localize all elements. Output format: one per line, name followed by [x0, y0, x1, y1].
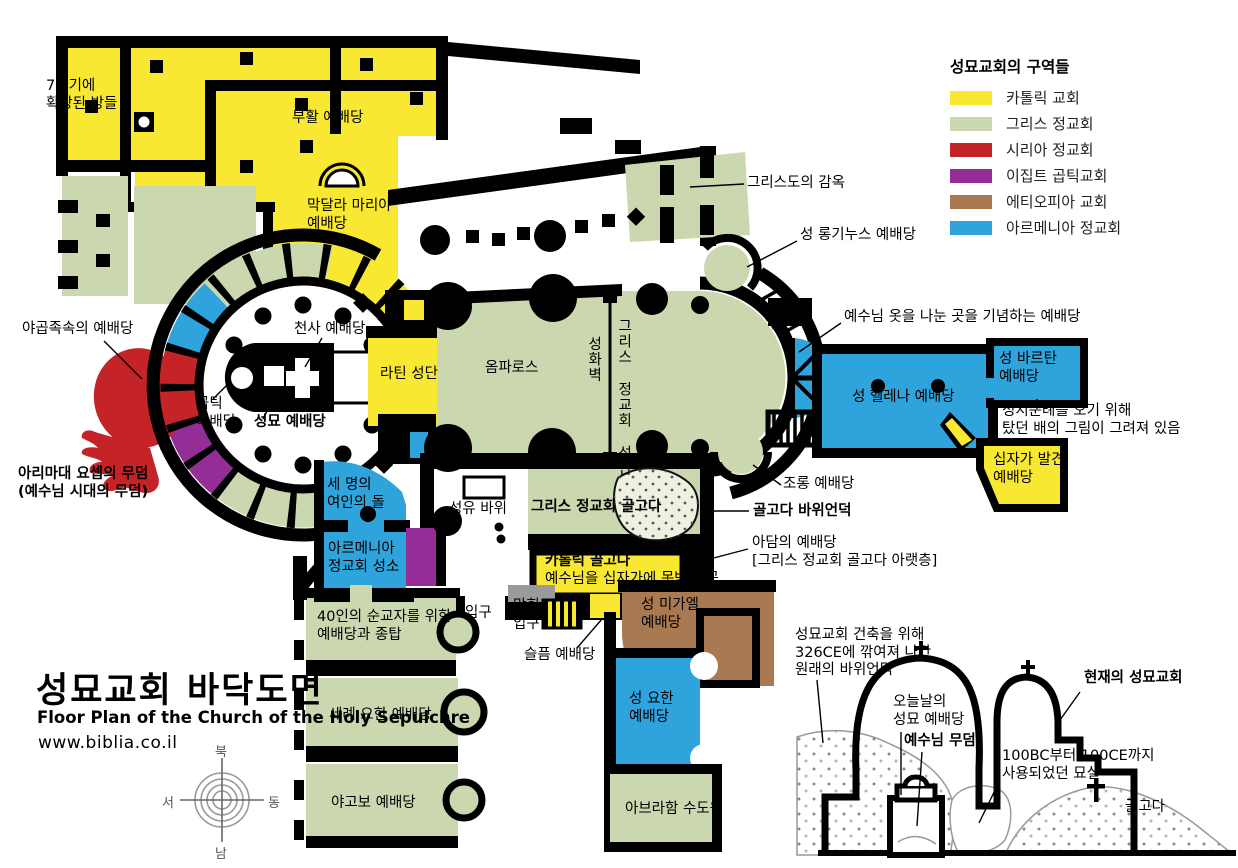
label-prison: 그리스도의 감옥	[747, 175, 845, 193]
label-robes: 예수님 옷을 나눈 곳을 기념하는 예배당	[844, 309, 1080, 327]
label-sorrow: 슬픔 예배당	[524, 647, 595, 665]
label-catholic-golgotha: 카톨릭 골고다	[545, 553, 630, 571]
legend-title: 성묘교회의 구역들	[950, 55, 1121, 77]
label-cut-rock: 성묘교회 건축을 위해 326CE에 깎여져 나간 원래의 바위언덕	[795, 627, 931, 680]
label-resurrection: 부활 예배당	[292, 110, 363, 128]
label-vartan: 성 바르탄 예배당	[999, 351, 1057, 386]
label-three-women: 세 명의 여인의 돌	[327, 477, 385, 512]
label-omphalos: 옴파로스	[485, 360, 538, 378]
legend-swatch-syrian	[950, 143, 992, 157]
label-greek-golgotha: 그리스 정교회 골고다	[531, 499, 661, 517]
page-title: 성묘교회 바닥도면	[36, 662, 324, 713]
compass-east: 동	[268, 792, 280, 811]
section-tomb-box	[890, 798, 942, 855]
legend-row-greek: 그리스 정교회	[950, 113, 1121, 134]
compass	[180, 758, 264, 842]
legend-row-catholic: 카톨릭 교회	[950, 87, 1121, 108]
legend-row-ethiopian: 에티오피아 교회	[950, 191, 1121, 212]
website-url[interactable]: www.biblia.co.il	[38, 733, 177, 753]
label-jesus-tomb: 예수님 무덤	[904, 733, 976, 751]
label-sepulchre: 성묘 예배당	[254, 414, 326, 432]
region-prison	[625, 152, 750, 242]
legend-swatch-armenian	[950, 221, 992, 235]
legend-row-coptic: 이집트 곱틱교회	[950, 165, 1121, 186]
label-forty-martyrs: 40인의 순교자를 위한 예배당과 종탑	[317, 609, 451, 644]
label-greek-altar: 그리스 정교회 성단	[614, 318, 632, 476]
label-angel: 천사 예배당	[294, 321, 365, 339]
legend-label: 카톨릭 교회	[1006, 87, 1080, 108]
legend-swatch-greek	[950, 117, 992, 131]
legend-label: 에티오피아 교회	[1006, 191, 1107, 212]
legend-swatch-coptic	[950, 169, 992, 183]
label-st-john: 성 요한 예배당	[629, 691, 674, 726]
legend: 성묘교회의 구역들 카톨릭 교회 그리스 정교회 시리아 정교회 이집트 곱틱교…	[950, 55, 1121, 243]
label-section-golgotha: 골고다	[1125, 799, 1165, 817]
legend-row-syrian: 시리아 정교회	[950, 139, 1121, 160]
region-longinus	[704, 245, 750, 291]
label-entrance: 입구	[465, 605, 492, 623]
label-mocking: 조롱 예배당	[783, 476, 854, 494]
legend-label: 이집트 곱틱교회	[1006, 165, 1107, 186]
label-armenian: 아르메니아 정교회 성소	[328, 541, 399, 576]
label-magdalene: 막달라 마리아 예배당	[307, 198, 392, 233]
label-golgotha-rock: 골고다 바위언덕	[753, 503, 851, 521]
label-longinus: 성 롱기누스 예배당	[800, 227, 916, 245]
region-armenian-purple	[406, 528, 438, 586]
label-coptic: 곱틱 예배당	[196, 396, 236, 431]
label-nailing: 예수님을 십자가에 못박은 곳	[545, 571, 719, 589]
section-right-hill	[1005, 787, 1233, 855]
label-burial-chamber: 100BC부터 100CE까지 사용되었던 묘실	[1002, 748, 1154, 783]
label-abraham: 아브라함 수도원	[625, 801, 723, 819]
label-cross-found: 십자가 발견 예배당	[993, 452, 1064, 487]
region-coptic-chapel	[229, 365, 255, 391]
label-jacobites: 야곱족속의 예배당	[22, 321, 133, 339]
label-today-chapel: 오늘날의 성묘 예배당	[893, 694, 964, 729]
label-helena: 성 헬레나 예배당	[852, 389, 955, 407]
legend-swatch-catholic	[950, 91, 992, 105]
label-rooms7c: 7세기에 확장된 방들	[46, 78, 117, 113]
floor-plan-page: 7세기에 확장된 방들 부활 예배당 막달라 마리아 예배당 그리스도의 감옥 …	[0, 0, 1238, 868]
compass-north: 북	[215, 741, 227, 760]
compass-south: 남	[215, 843, 227, 862]
legend-label: 그리스 정교회	[1006, 113, 1094, 134]
label-icon-wall: 성화벽	[584, 336, 602, 383]
legend-row-armenian: 아르메니아 정교회	[950, 217, 1121, 238]
page-subtitle: Floor Plan of the Church of the Holy Sep…	[37, 708, 470, 727]
legend-label: 아르메니아 정교회	[1006, 217, 1121, 238]
legend-swatch-ethiopian	[950, 195, 992, 209]
label-latin: 라틴 성단	[380, 366, 438, 384]
north-aisle-columns	[420, 208, 645, 255]
blocked-entrance-stripes	[543, 600, 581, 628]
label-blocked: 막힌 입구	[513, 598, 540, 633]
label-adam: 아담의 예배당 [그리스 정교회 골고다 아랫층]	[752, 535, 937, 570]
label-current-church: 현재의 성묘교회	[1084, 670, 1182, 688]
label-ship-note: 성지순례를 오기 위해 탔던 배의 그림이 그려져 있음	[1002, 403, 1181, 438]
prison-of-christ-area	[625, 152, 750, 243]
label-arimathea: 아리마대 요셉의 무덤 (예수님 시대의 무덤)	[18, 466, 148, 501]
label-james: 야고보 예배당	[331, 795, 416, 813]
compass-west: 서	[162, 792, 174, 811]
anointing-stone-rect	[464, 477, 504, 498]
legend-label: 시리아 정교회	[1006, 139, 1094, 160]
label-michael: 성 미가엘 예배당	[641, 597, 699, 632]
label-anointing: 성유 바위	[449, 501, 507, 519]
